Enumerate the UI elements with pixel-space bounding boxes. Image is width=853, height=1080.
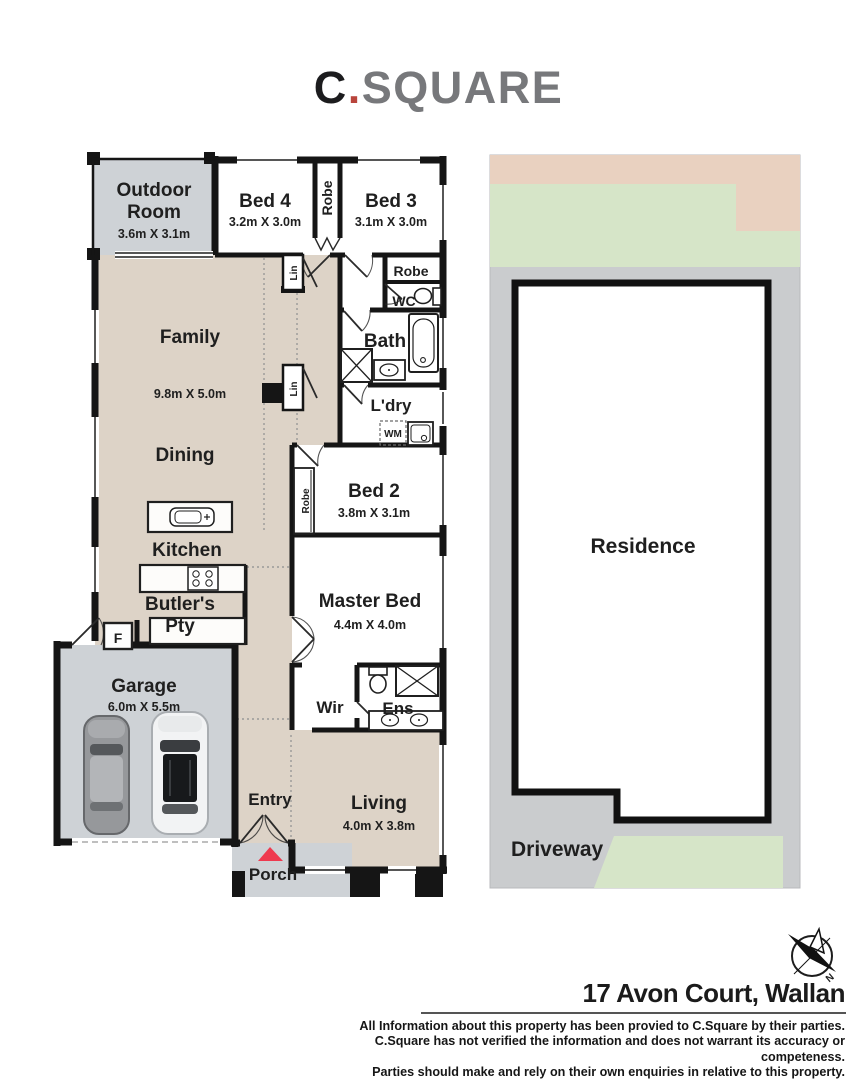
disclaimer-text: All Information about this property has …: [305, 1019, 845, 1080]
plans-canvas: Outdoor Room 3.6m X 3.1m Bed 4 3.2m X 3.…: [0, 0, 853, 1080]
room-label-garage: Garage: [111, 676, 176, 697]
site-label-residence: Residence: [590, 535, 695, 558]
floorplan-page: C.SQUARE: [0, 0, 853, 1080]
address-underline: [421, 1012, 846, 1014]
room-label-robe-hall: Robe: [394, 263, 429, 279]
room-label-dining: Dining: [155, 445, 214, 466]
room-label-linen-lower: Lin: [289, 382, 300, 397]
room-label-outdoor-2: Room: [127, 202, 181, 223]
bath-shower-icon: [341, 349, 372, 382]
room-dims-bed2: 3.8m X 3.1m: [338, 506, 410, 520]
room-label-fridge: F: [114, 630, 123, 646]
room-label-porch: Porch: [249, 865, 297, 884]
room-label-butlers-2: Pty: [165, 616, 195, 637]
room-label-entry: Entry: [248, 790, 292, 809]
bath-basin-icon: [374, 360, 405, 380]
room-dims-bed4: 3.2m X 3.0m: [229, 215, 301, 229]
room-label-bath: Bath: [364, 331, 406, 352]
siteplan: Residence Driveway: [490, 155, 800, 888]
room-label-butlers-1: Butler's: [145, 594, 215, 615]
room-dims-garage: 6.0m X 5.5m: [108, 700, 180, 714]
room-label-family: Family: [160, 327, 221, 348]
room-label-linen-upper: Lin: [289, 266, 300, 281]
disclaimer-line-3: Parties should make and rely on their ow…: [305, 1065, 845, 1080]
ens-toilet-icon: [369, 667, 387, 693]
property-address: 17 Avon Court, Wallan: [582, 978, 845, 1009]
room-label-robe-bedrooms: Robe: [319, 180, 335, 215]
room-label-robe-bed2: Robe: [301, 488, 312, 513]
floorplan: Outdoor Room 3.6m X 3.1m Bed 4 3.2m X 3.…: [57, 152, 447, 897]
room-dims-family: 9.8m X 5.0m: [154, 387, 226, 401]
ens-shower-icon: [396, 666, 438, 696]
car-dark: [84, 716, 129, 834]
room-label-master: Master Bed: [319, 591, 421, 612]
room-label-bed2: Bed 2: [348, 481, 400, 502]
room-label-bed4: Bed 4: [239, 191, 291, 212]
room-label-living: Living: [351, 793, 407, 814]
room-label-wc: WC: [392, 293, 415, 309]
bathtub-icon: [409, 314, 438, 372]
room-label-wir: Wir: [316, 698, 344, 717]
room-dims-living: 4.0m X 3.8m: [343, 819, 415, 833]
room-label-laundry: L'dry: [371, 396, 412, 415]
site-grass-front: [594, 836, 783, 888]
cooktop-icon: [188, 567, 218, 590]
room-label-bed3: Bed 3: [365, 191, 417, 212]
room-dims-bed3: 3.1m X 3.0m: [355, 215, 427, 229]
room-dims-master: 4.4m X 4.0m: [334, 618, 406, 632]
room-label-outdoor-1: Outdoor: [117, 180, 193, 201]
kitchen-island: [148, 502, 232, 532]
north-arrow-icon: N: [788, 929, 837, 985]
car-white: [152, 712, 208, 834]
wc-toilet-icon: [415, 288, 442, 305]
room-label-kitchen: Kitchen: [152, 540, 222, 561]
room-dims-outdoor: 3.6m X 3.1m: [118, 227, 190, 241]
disclaimer-line-2: C.Square has not verified the informatio…: [305, 1034, 845, 1065]
room-label-ens: Ens: [382, 699, 413, 718]
site-label-driveway: Driveway: [511, 838, 604, 861]
disclaimer-line-1: All Information about this property has …: [305, 1019, 845, 1034]
room-label-wm: WM: [384, 429, 402, 440]
